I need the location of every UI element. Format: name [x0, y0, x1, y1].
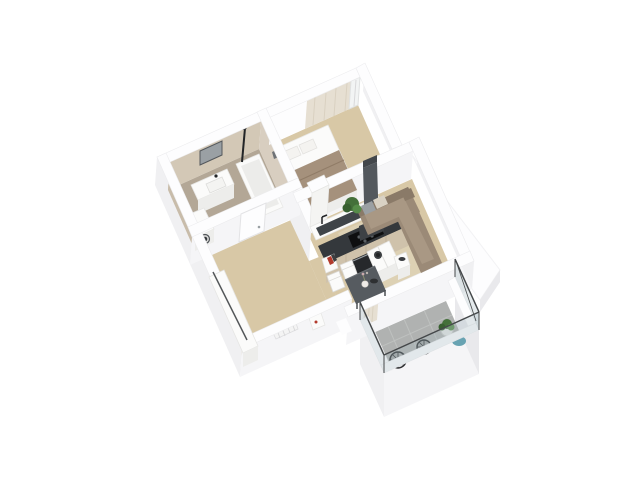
air-purifier-top — [399, 257, 406, 261]
sofa-plant — [353, 205, 362, 214]
dining-flower — [366, 272, 368, 274]
apartment-render-page — [0, 0, 640, 480]
apartment-3d-floorplan — [0, 0, 640, 480]
shoe-accent — [315, 321, 318, 324]
dining-bowl — [370, 279, 378, 284]
table-speaker-inner — [376, 253, 380, 257]
sink-faucet — [214, 174, 217, 177]
sofa-plant — [343, 204, 352, 213]
burner — [363, 239, 366, 242]
dining-vase — [362, 281, 368, 287]
bathroom-door-handle — [258, 226, 261, 229]
dining-flower — [362, 273, 365, 276]
